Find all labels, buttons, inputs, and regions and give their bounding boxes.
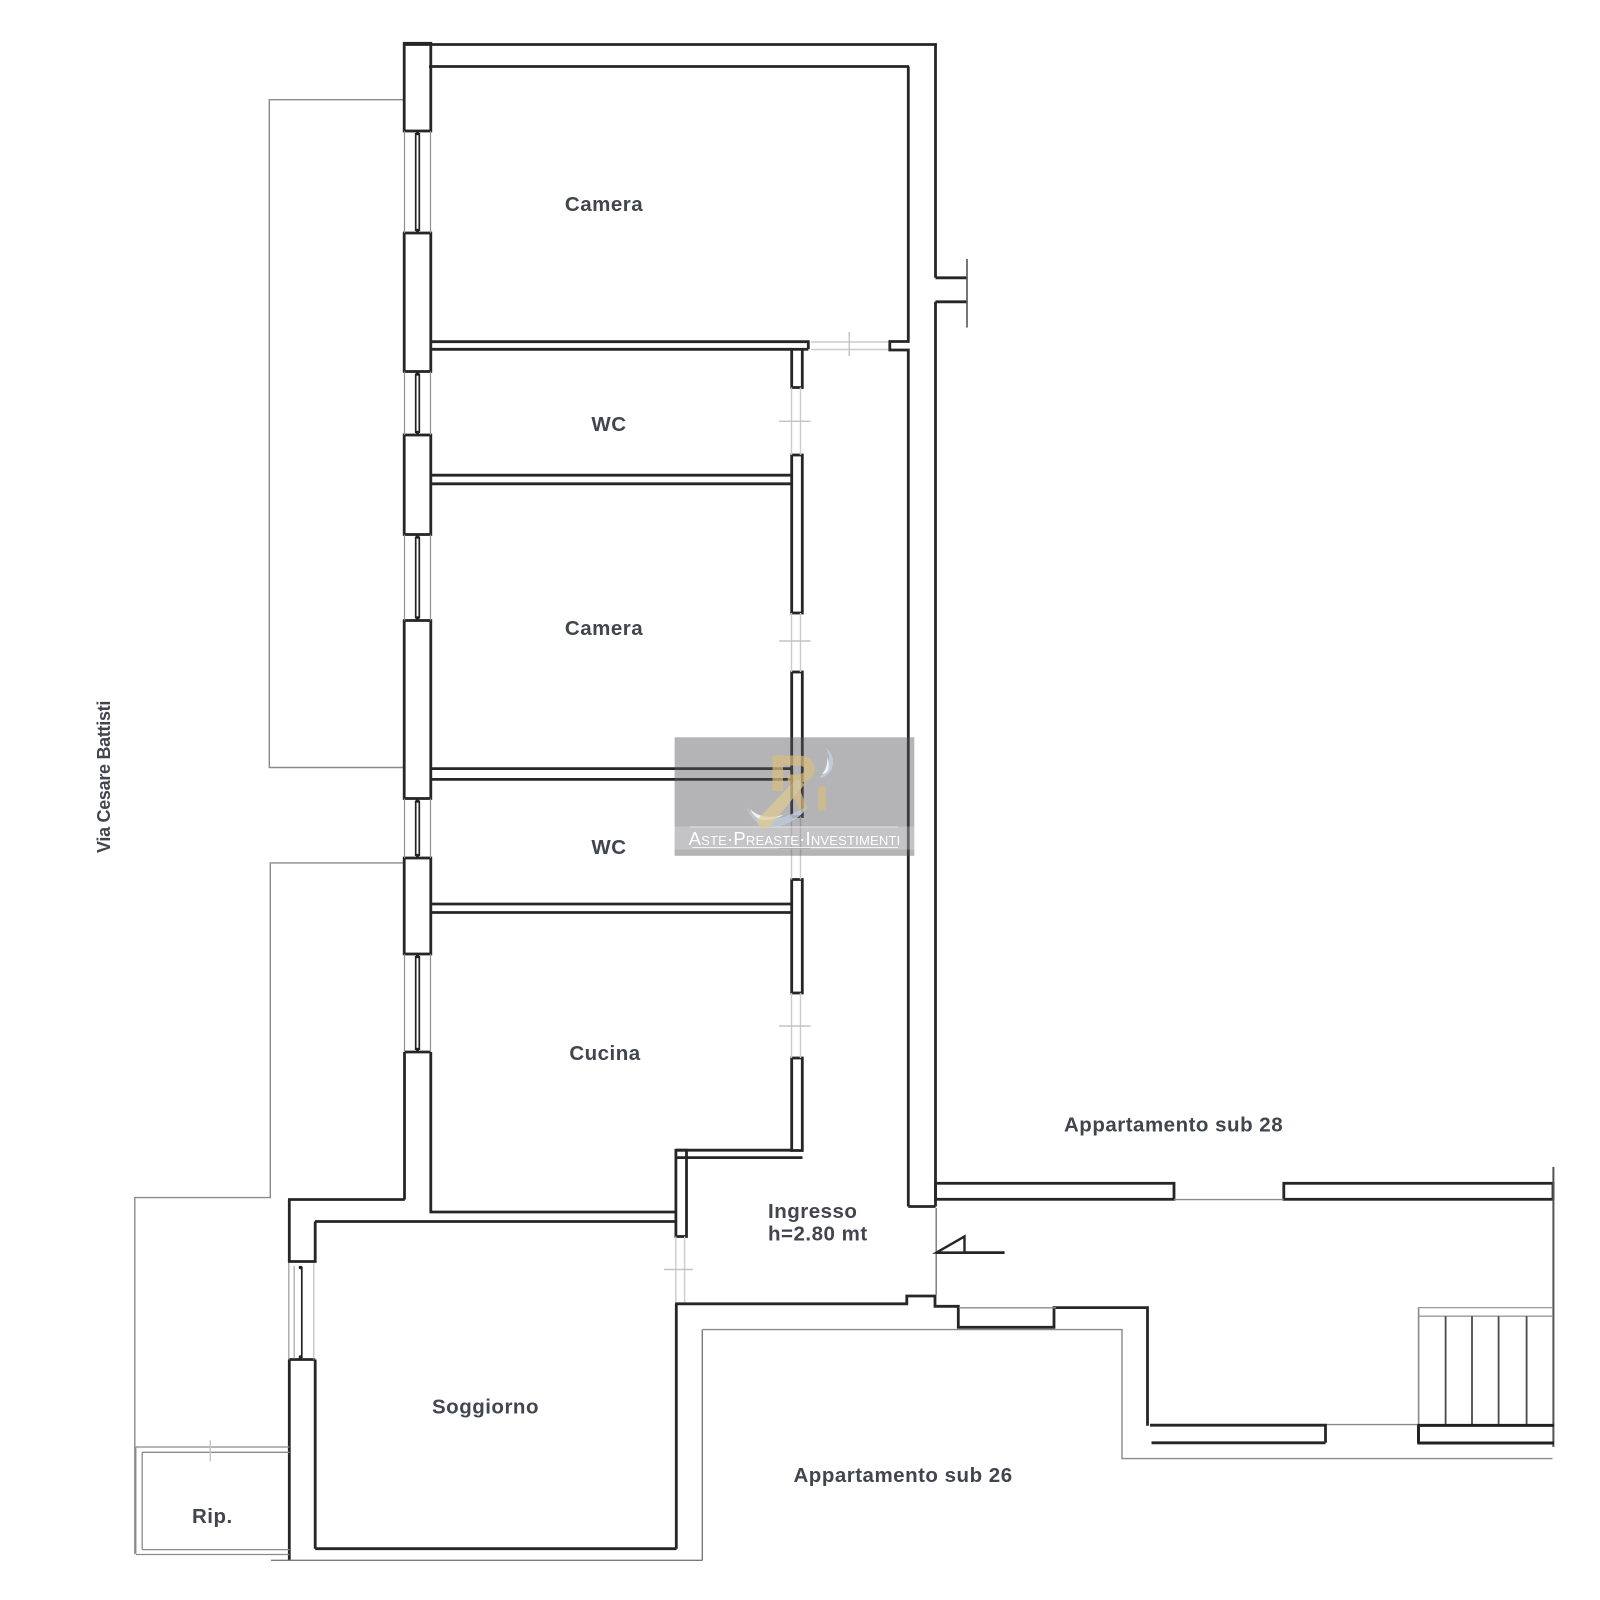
svg-text:Camera: Camera <box>565 193 643 216</box>
svg-text:Rip.: Rip. <box>192 1505 233 1528</box>
svg-text:Appartamento sub 26: Appartamento sub 26 <box>794 1464 1013 1487</box>
svg-text:Cucina: Cucina <box>569 1042 640 1065</box>
svg-text:h=2.80 mt: h=2.80 mt <box>768 1223 868 1246</box>
svg-text:WC: WC <box>591 413 626 436</box>
svg-text:Ingresso: Ingresso <box>768 1200 857 1223</box>
svg-text:Appartamento sub 28: Appartamento sub 28 <box>1064 1114 1283 1137</box>
svg-text:Soggiorno: Soggiorno <box>432 1396 539 1419</box>
svg-text:WC: WC <box>591 836 626 859</box>
svg-text:Aste·Preaste·Investimenti: Aste·Preaste·Investimenti <box>689 828 901 849</box>
svg-text:Camera: Camera <box>565 617 643 640</box>
svg-text:Via Cesare Battisti: Via Cesare Battisti <box>94 701 114 853</box>
